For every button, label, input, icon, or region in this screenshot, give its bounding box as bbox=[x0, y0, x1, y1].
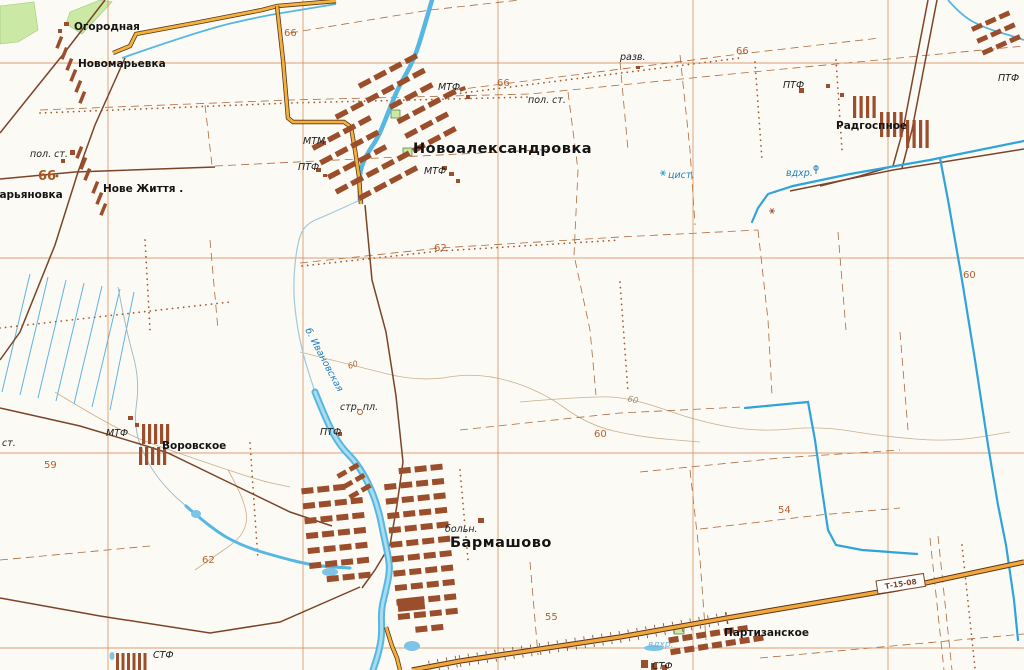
building-block bbox=[417, 494, 430, 501]
building-block bbox=[439, 550, 452, 557]
building-block bbox=[338, 529, 351, 536]
building-single bbox=[64, 22, 69, 26]
embankment-tick bbox=[728, 621, 729, 624]
pond bbox=[191, 510, 201, 518]
label-mtf-1: МТФ bbox=[438, 82, 460, 93]
building-bar bbox=[133, 653, 136, 670]
embankment-tick bbox=[448, 666, 449, 669]
label-pol-st-1: пол. ст. bbox=[30, 149, 68, 160]
building-bar bbox=[138, 653, 141, 670]
building-block bbox=[357, 557, 370, 564]
building-bar bbox=[926, 120, 929, 148]
building-block bbox=[426, 581, 439, 588]
building-block bbox=[419, 509, 432, 516]
building-block bbox=[408, 553, 421, 560]
building-block bbox=[326, 575, 339, 582]
building-bar bbox=[866, 96, 869, 118]
label-num-54: 54 bbox=[778, 505, 791, 516]
building-single bbox=[135, 423, 139, 427]
building-block bbox=[442, 579, 455, 586]
building-bar bbox=[873, 96, 876, 118]
building-block bbox=[307, 547, 320, 554]
building-block bbox=[309, 562, 322, 569]
building-block bbox=[445, 608, 458, 615]
building-single bbox=[323, 174, 327, 177]
label-ptf-4: ПТФ bbox=[320, 427, 341, 438]
building-bar bbox=[122, 653, 125, 670]
embankment-tick bbox=[455, 656, 456, 659]
building-bar bbox=[157, 447, 160, 465]
label-vorovskoe: Воровское bbox=[162, 440, 226, 452]
building-block bbox=[404, 525, 417, 532]
building-block bbox=[420, 523, 433, 530]
building-block bbox=[303, 502, 316, 509]
pond bbox=[322, 568, 338, 576]
building-single bbox=[58, 29, 62, 33]
label-stf-2: СТФ bbox=[652, 661, 673, 670]
label-mtm: МТМ bbox=[303, 136, 325, 147]
building-block bbox=[444, 593, 457, 600]
building-block bbox=[393, 570, 406, 577]
building-block bbox=[301, 487, 314, 494]
building-block bbox=[358, 572, 371, 579]
embankment-tick bbox=[691, 627, 692, 630]
label-num-66b: 66 bbox=[497, 78, 510, 89]
building-block bbox=[390, 541, 403, 548]
embankment-tick bbox=[629, 638, 630, 641]
label-nove-zhittya: Нове Життя . bbox=[103, 183, 183, 195]
building-block bbox=[425, 566, 438, 573]
building-block bbox=[352, 512, 365, 519]
building-block bbox=[386, 497, 399, 504]
building-block bbox=[398, 613, 411, 620]
building-block bbox=[411, 582, 424, 589]
embankment-tick bbox=[716, 614, 717, 617]
building-bar bbox=[148, 424, 151, 444]
building-block bbox=[414, 465, 427, 472]
building-block bbox=[320, 515, 333, 522]
building-block bbox=[398, 467, 411, 474]
building-bar bbox=[145, 447, 148, 465]
label-vdhr-2: вдхр. bbox=[648, 640, 673, 650]
embankment-tick bbox=[683, 629, 684, 632]
embankment-tick bbox=[638, 637, 639, 640]
embankment-tick bbox=[699, 617, 700, 620]
label-novomaryevka: Новомарьевка bbox=[78, 58, 166, 70]
building-block bbox=[339, 543, 352, 550]
building-block bbox=[384, 483, 397, 490]
building-block bbox=[319, 500, 332, 507]
building-bar bbox=[142, 424, 145, 444]
building-block bbox=[355, 542, 368, 549]
building-block bbox=[415, 626, 428, 633]
label-razv: разв. bbox=[619, 52, 646, 63]
building-bar bbox=[116, 653, 119, 670]
building-block bbox=[403, 510, 416, 517]
embankment-tick bbox=[663, 623, 664, 626]
label-num-60a: 60 bbox=[594, 429, 607, 440]
embankment-tick bbox=[665, 632, 666, 635]
building-single bbox=[466, 95, 470, 99]
building-single bbox=[636, 66, 640, 69]
building-single bbox=[449, 172, 454, 176]
building-block bbox=[438, 536, 451, 543]
label-barmashovo: Бармашово bbox=[450, 535, 552, 551]
building-block bbox=[416, 480, 429, 487]
building-block bbox=[323, 545, 336, 552]
building-block bbox=[430, 464, 443, 471]
building-block bbox=[354, 527, 367, 534]
label-cist: цист. bbox=[668, 170, 694, 181]
embankment-tick bbox=[646, 626, 647, 629]
embankment-tick bbox=[709, 624, 710, 627]
label-stf-1: СТФ bbox=[153, 650, 174, 661]
building-single bbox=[478, 518, 484, 523]
embankment-tick bbox=[429, 661, 430, 664]
building-bar bbox=[913, 120, 916, 148]
label-num-55: 55 bbox=[545, 612, 558, 623]
embankment-tick bbox=[637, 628, 638, 631]
label-vdhr-1: вдхр. bbox=[786, 168, 813, 179]
embankment-tick bbox=[457, 665, 458, 668]
label-partizanskoe: Партизанское bbox=[724, 627, 809, 639]
building-block bbox=[387, 512, 400, 519]
building-block bbox=[322, 530, 335, 537]
building-block bbox=[341, 558, 354, 565]
building-block bbox=[429, 609, 442, 616]
building-bar bbox=[151, 447, 154, 465]
label-ptf-3: ПТФ bbox=[998, 73, 1019, 84]
embankment-tick bbox=[690, 619, 691, 622]
building-bar bbox=[919, 120, 922, 148]
label-boln: больн. bbox=[445, 524, 478, 535]
building-bar bbox=[154, 424, 157, 444]
green-square bbox=[391, 110, 400, 118]
building-single bbox=[128, 416, 133, 420]
embankment-tick bbox=[621, 640, 622, 643]
building-block bbox=[435, 507, 448, 514]
building-block bbox=[441, 565, 454, 572]
label-num-66a: 66 bbox=[284, 28, 297, 39]
building-block bbox=[395, 584, 408, 591]
embankment-tick bbox=[656, 634, 657, 637]
embankment-tick bbox=[708, 615, 709, 618]
building-block bbox=[423, 552, 436, 559]
pond bbox=[110, 652, 115, 660]
building-block bbox=[400, 481, 413, 488]
embankment-tick bbox=[700, 626, 701, 629]
label-ptf-1: ПТФ bbox=[298, 162, 319, 173]
building-block bbox=[414, 611, 427, 618]
pond bbox=[404, 641, 420, 651]
map-paper bbox=[0, 0, 1024, 670]
label-maryanovka: Марьяновка bbox=[0, 189, 63, 201]
building-block bbox=[335, 499, 348, 506]
building-block bbox=[401, 496, 414, 503]
building-block bbox=[422, 537, 435, 544]
label-str-pl: стр. пл. bbox=[340, 402, 378, 413]
building-block bbox=[342, 573, 355, 580]
building-block bbox=[306, 532, 319, 539]
building-bar bbox=[853, 96, 856, 118]
building-single bbox=[840, 93, 844, 97]
building-block bbox=[431, 624, 444, 631]
embankment-tick bbox=[681, 620, 682, 623]
embankment-tick bbox=[654, 625, 655, 628]
building-block bbox=[389, 526, 402, 533]
embankment-tick bbox=[726, 612, 727, 615]
building-block bbox=[428, 595, 441, 602]
label-ogorodnaya: Огородная bbox=[74, 21, 140, 33]
label-mtf-3: МТФ bbox=[106, 428, 128, 439]
embankment-tick bbox=[628, 630, 629, 633]
label-radgospnoe: Радгоспное bbox=[836, 120, 907, 132]
label-novoaleksandrovka: Новоалександровка bbox=[413, 141, 592, 157]
label-num-66d: 66 bbox=[38, 169, 56, 184]
label-num-60b: 60 bbox=[963, 270, 976, 281]
label-ptf-2: ПТФ bbox=[783, 80, 804, 91]
building-block bbox=[409, 568, 422, 575]
building-single bbox=[826, 84, 830, 88]
building-block bbox=[392, 555, 405, 562]
label-mtf-2: МТФ bbox=[424, 166, 446, 177]
label-num-62a: 62 bbox=[434, 243, 447, 254]
building-block bbox=[317, 485, 330, 492]
building-single bbox=[70, 150, 75, 155]
building-block bbox=[325, 560, 338, 567]
building-single bbox=[641, 660, 648, 668]
topo-map: Т-15-08ОгороднаяНовомарьевкаМарьяновкаНо… bbox=[0, 0, 1024, 670]
label-num-62b: 62 bbox=[202, 555, 215, 566]
label-num-59: 59 bbox=[44, 460, 57, 471]
building-bar bbox=[139, 447, 142, 465]
label-st: ст. bbox=[2, 438, 16, 449]
embankment-tick bbox=[647, 635, 648, 638]
map-viewport: Т-15-08ОгороднаяНовомарьевкаМарьяновкаНо… bbox=[0, 0, 1024, 670]
embankment-tick bbox=[619, 631, 620, 634]
building-bar bbox=[127, 653, 130, 670]
building-block bbox=[304, 517, 317, 524]
building-bar bbox=[860, 96, 863, 118]
label-num-66c: 66 bbox=[736, 46, 749, 57]
embankment-tick bbox=[718, 623, 719, 626]
building-bar bbox=[144, 653, 147, 670]
embankment-tick bbox=[672, 622, 673, 625]
building-block bbox=[406, 539, 419, 546]
embankment-tick bbox=[674, 631, 675, 634]
label-pol-st-2: пол. ст. bbox=[528, 95, 566, 106]
embankment-tick bbox=[446, 657, 447, 660]
embankment-tick bbox=[437, 659, 438, 662]
building-block bbox=[432, 478, 445, 485]
building-block bbox=[433, 492, 446, 499]
building-single bbox=[456, 179, 460, 183]
building-block bbox=[336, 514, 349, 521]
